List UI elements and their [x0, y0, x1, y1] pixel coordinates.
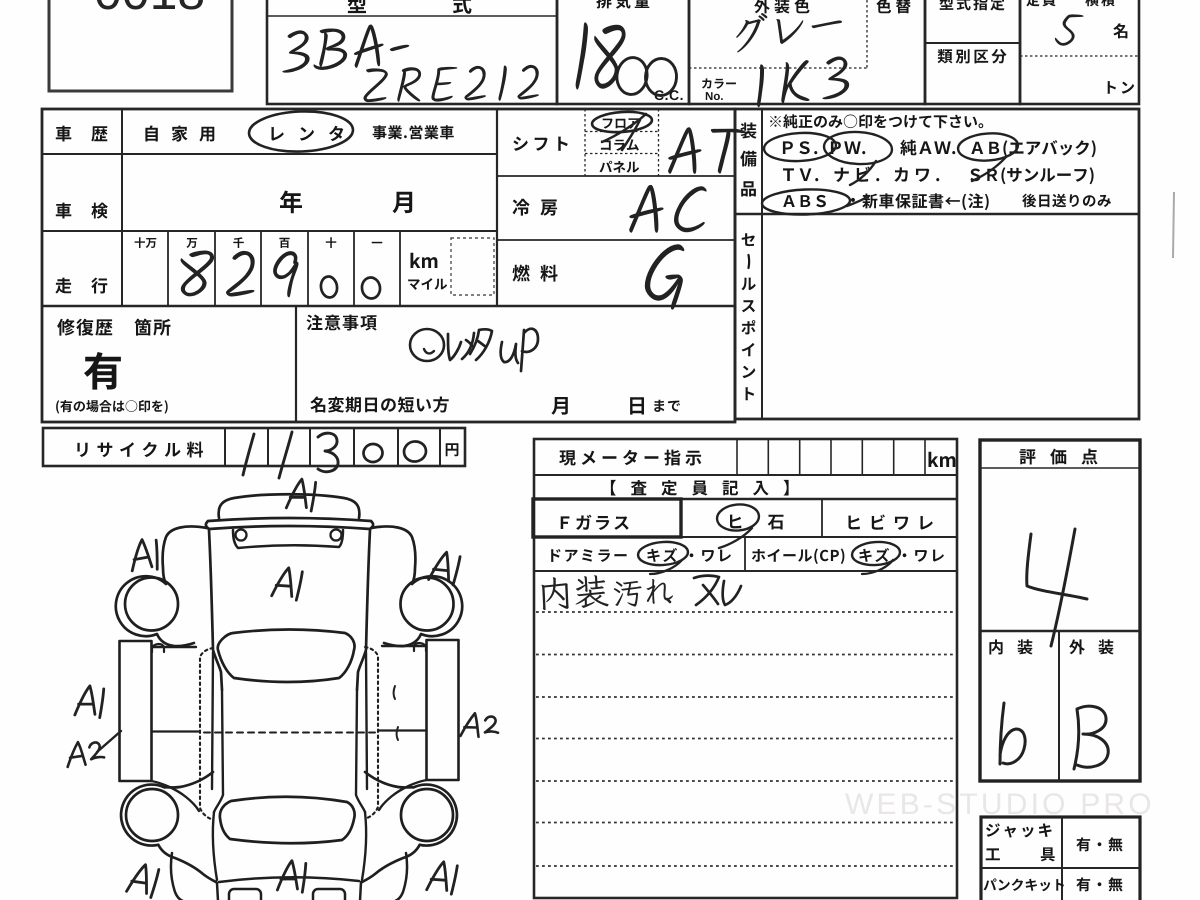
svg-text:0018: 0018 — [94, 0, 205, 20]
